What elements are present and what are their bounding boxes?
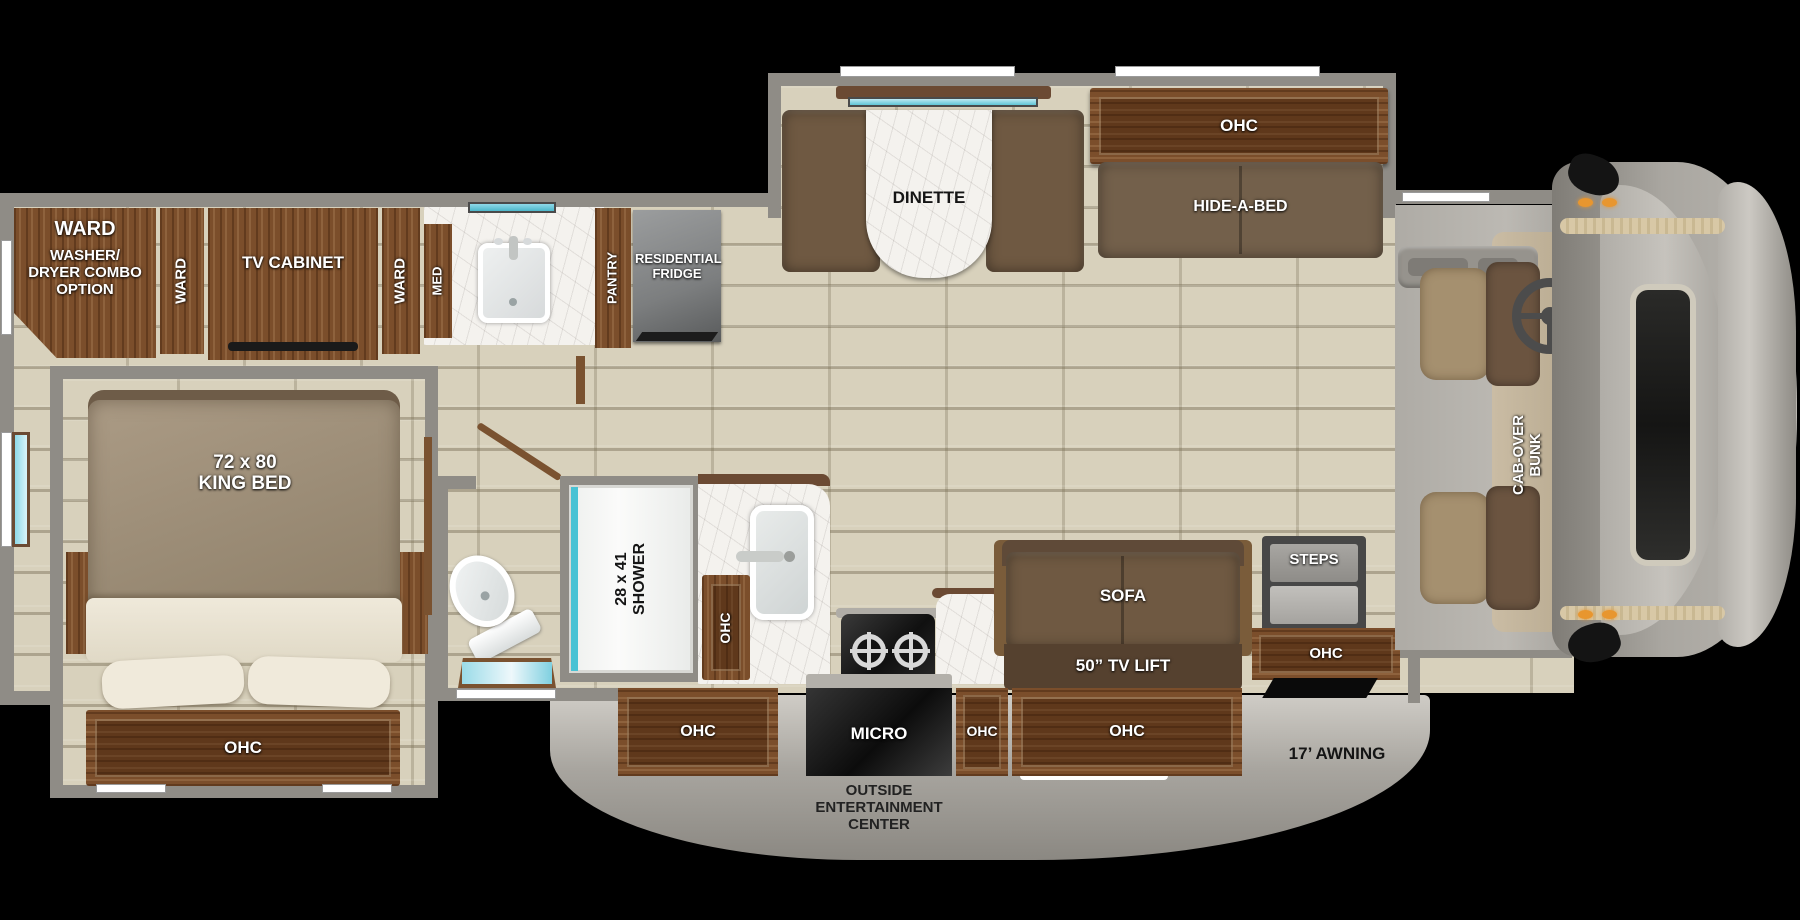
top-wall-left (0, 193, 785, 207)
step-upper: STEPS (1270, 544, 1358, 582)
lav-drain (509, 298, 517, 306)
bedroom-rear-window (12, 432, 30, 547)
driver-seat-cushion (1420, 268, 1490, 380)
marker-light-bottom-1 (1578, 610, 1593, 619)
tv-cabinet: TV CABINET (208, 208, 378, 360)
ward-left-label: WARD (174, 258, 191, 304)
hall-door-jamb (576, 356, 585, 404)
dinette-ohc: OHC (1090, 88, 1388, 164)
bed-slide-window-right (322, 784, 392, 793)
kitchen-faucet-base (784, 551, 795, 562)
shower-label-group: 28 x 41 SHOWER (613, 543, 649, 615)
marker-light-top-1 (1578, 198, 1593, 207)
fridge-label: RESIDENTIAL FRIDGE (635, 252, 719, 281)
bath-window (456, 689, 556, 699)
dinette-ohc-panel: OHC (1099, 97, 1379, 155)
washer-dryer-ward-cabinet: WARD WASHER/ DRYER COMBO OPTION (14, 208, 156, 358)
ward-right-label: WARD (393, 258, 410, 304)
entry-ohc-panel: OHC (1259, 635, 1393, 673)
hide-a-bed-label: HIDE-A-BED (1098, 198, 1383, 216)
marker-light-top-2 (1602, 198, 1617, 207)
residential-fridge: RESIDENTIAL FRIDGE (633, 210, 721, 342)
awning-label: 17’ AWNING (1262, 744, 1412, 763)
entry-steps: STEPS (1262, 536, 1366, 632)
bed-slide-window-left (96, 784, 166, 793)
entry-wall-return (1408, 645, 1420, 703)
sofa-label: SOFA (1006, 586, 1240, 605)
sofa: SOFA (1006, 552, 1240, 648)
cabover-front-trim-top (1560, 218, 1725, 234)
pantry-cabinet: PANTRY (595, 208, 631, 348)
fridge-base-shadow (636, 332, 718, 341)
dinette-ohc-label: OHC (1220, 116, 1258, 135)
bath-wall-stub (434, 476, 476, 489)
kitchen-ohc-left-label: OHC (680, 723, 716, 741)
living-ohc-label: OHC (1109, 723, 1145, 741)
bedroom-ohc-panel: OHC (95, 719, 391, 777)
kitchen-ohc-right: OHC (956, 688, 1008, 776)
king-bed-size: 72 x 80 (120, 452, 370, 473)
bed-blanket (86, 598, 402, 662)
cab-over-bunk-label: CAB-OVER BUNK (1496, 372, 1560, 537)
ward-right-cabinet: WARD (382, 208, 420, 354)
entry-ohc-label: OHC (1309, 646, 1342, 663)
washer-dryer-label: WASHER/ DRYER COMBO OPTION (26, 248, 144, 298)
rear-window-bottom (1, 432, 12, 547)
dinette-window (848, 97, 1038, 107)
entry-ohc: OHC (1252, 628, 1400, 680)
king-bed-type: KING BED (120, 473, 370, 494)
living-ohc-panel: OHC (1021, 697, 1233, 767)
kitchen-ohc-sink-panel: OHC (711, 584, 741, 671)
kitchen-faucet (736, 551, 784, 562)
lav-window (468, 202, 556, 213)
windshield (1630, 284, 1696, 566)
kitchen-ohc-right-label: OHC (966, 724, 997, 740)
hide-a-bed: HIDE-A-BED (1098, 162, 1383, 258)
tv-lift-label: 50” TV LIFT (1004, 656, 1242, 675)
bed-pillow-left (101, 654, 245, 709)
bed-pillow-right (247, 656, 391, 709)
stove-burner-left (852, 634, 886, 668)
bedroom-door (424, 437, 432, 615)
step-lower (1270, 586, 1358, 624)
shower-size-label: 28 x 41 (613, 543, 631, 615)
bedroom-ohc: OHC (86, 710, 400, 786)
micro-label: MICRO (806, 724, 952, 743)
lav-faucet-handle-left (494, 238, 503, 245)
bedroom-ohc-label: OHC (224, 738, 262, 757)
tv-cabinet-label: TV CABINET (223, 253, 363, 272)
king-bed-mattress (88, 400, 400, 612)
kitchen-ohc-right-panel: OHC (963, 695, 1001, 769)
kitchen-sink (750, 505, 814, 620)
rear-window-top (1, 240, 12, 335)
med-label: MED (431, 267, 446, 296)
kitchen-ohc-left-panel: OHC (627, 697, 769, 767)
lav-faucet-handle-right (523, 238, 532, 245)
kitchen-ohc-left: OHC (618, 688, 778, 776)
dinette-bench-right (986, 110, 1084, 272)
pantry-label: PANTRY (606, 252, 621, 304)
entry-door-shadow (1262, 678, 1378, 698)
microwave: MICRO (806, 688, 952, 776)
outside-entertainment-label: OUTSIDE ENTERTAINMENT CENTER (788, 783, 970, 833)
shower-label: SHOWER (631, 543, 649, 615)
shower: 28 x 41 SHOWER (560, 476, 702, 682)
top-right-window (1402, 192, 1490, 202)
front-bumper (1718, 182, 1796, 647)
tv-lift-front: 50” TV LIFT (1004, 644, 1242, 690)
rv-floorplan: 17’ AWNING OUTSIDE ENTERTAINMENT CENTER … (0, 0, 1800, 920)
marker-light-bottom-2 (1602, 610, 1617, 619)
bath-skylight (458, 658, 556, 688)
king-bed-label: 72 x 80 KING BED (120, 452, 370, 495)
living-ohc: OHC (1012, 688, 1242, 776)
dinette-table: DINETTE (866, 110, 992, 278)
ward-left-cabinet: WARD (160, 208, 204, 354)
dinette-slide-window-left (840, 66, 1015, 77)
steps-label: STEPS (1270, 552, 1358, 569)
shower-glass (571, 487, 578, 671)
ward-corner-label: WARD (22, 218, 148, 240)
dinette-slide-window-right (1115, 66, 1320, 77)
cab-over-bunk-text: CAB-OVER BUNK (1511, 407, 1545, 503)
tv-screen (228, 342, 358, 351)
med-cabinet: MED (424, 224, 452, 338)
kitchen-ohc-sink-cabinet: OHC (702, 575, 750, 680)
stove-burner-right (894, 634, 928, 668)
kitchen-ohc-sink-label: OHC (718, 612, 734, 643)
passenger-seat-cushion (1420, 492, 1490, 604)
lav-faucet (509, 236, 518, 260)
dinette-label: DINETTE (866, 188, 992, 207)
